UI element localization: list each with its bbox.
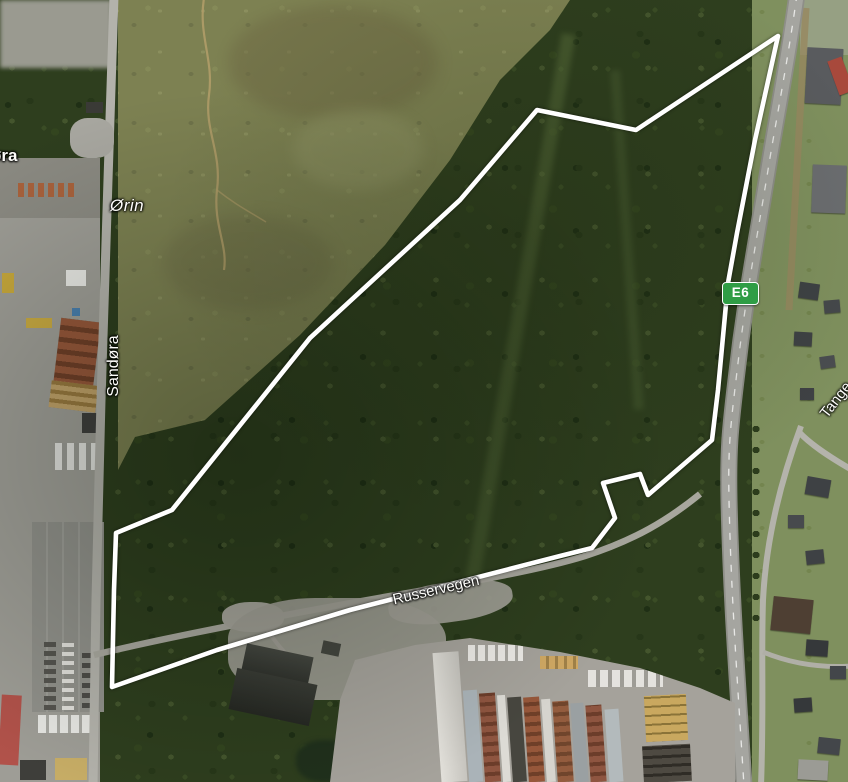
e6-route-badge: E6 (722, 282, 759, 305)
road-label-sandora: Sandøra (105, 335, 123, 396)
shading-overlay (0, 0, 848, 782)
satellite-map-canvas[interactable]: øra Ørin Sandøra Russervegen Tange E6 (0, 0, 848, 782)
place-label-orin: Ørin (110, 196, 144, 216)
place-label-partial: øra (0, 146, 17, 166)
